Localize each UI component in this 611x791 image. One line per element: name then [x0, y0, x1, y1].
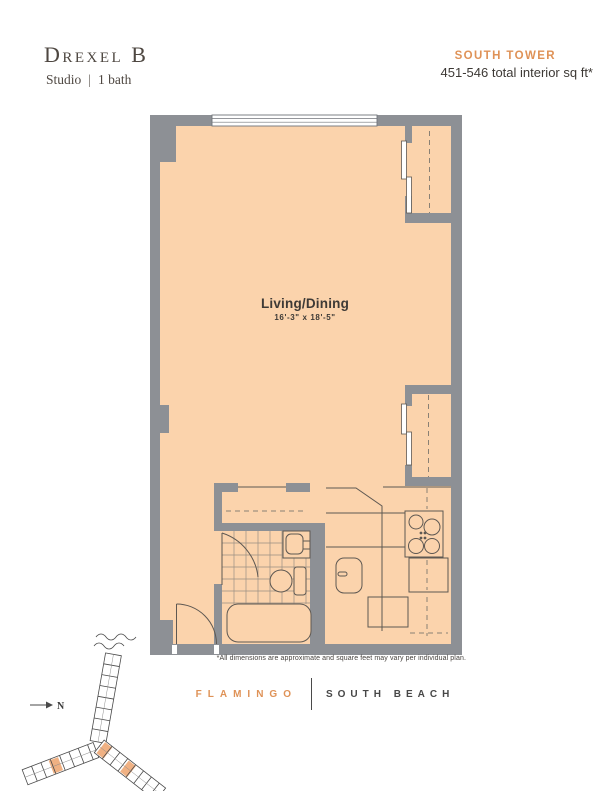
- bathroom-sink-icon: [283, 531, 310, 558]
- floor-plan-drawing: N: [0, 0, 611, 791]
- room-name: Living/Dining: [228, 296, 382, 311]
- bathtub-icon: [227, 604, 311, 642]
- dimensions-disclaimer: *All dimensions are approximate and squa…: [150, 655, 466, 662]
- building-wing-southwest: [22, 743, 99, 785]
- sliding-door-panel: [407, 432, 412, 465]
- logo-flamingo: FLAMINGO: [196, 689, 297, 700]
- sliding-door-panel: [402, 404, 407, 434]
- brochure-page: Drexel B Studio|1 bath SOUTH TOWER 451-5…: [0, 0, 611, 791]
- logo-south-beach: SOUTH BEACH: [326, 689, 454, 700]
- window: [212, 115, 377, 126]
- room-dimensions: 16'-3" x 18'-5": [228, 313, 382, 322]
- floor-plan: [150, 115, 462, 655]
- sliding-door-panel: [402, 141, 407, 179]
- door-jamb: [172, 645, 177, 654]
- building-wing-southeast: [94, 740, 165, 791]
- sliding-door-panel: [407, 177, 412, 213]
- logo-divider: [311, 678, 312, 710]
- room-label: Living/Dining 16'-3" x 18'-5": [228, 296, 382, 322]
- property-logo: FLAMINGO SOUTH BEACH: [39, 677, 611, 711]
- door-jamb: [214, 645, 219, 654]
- site-map: N: [22, 634, 165, 791]
- building-outline: [22, 653, 165, 791]
- water-lines: [94, 634, 136, 649]
- kitchen-sink-icon: [336, 558, 362, 593]
